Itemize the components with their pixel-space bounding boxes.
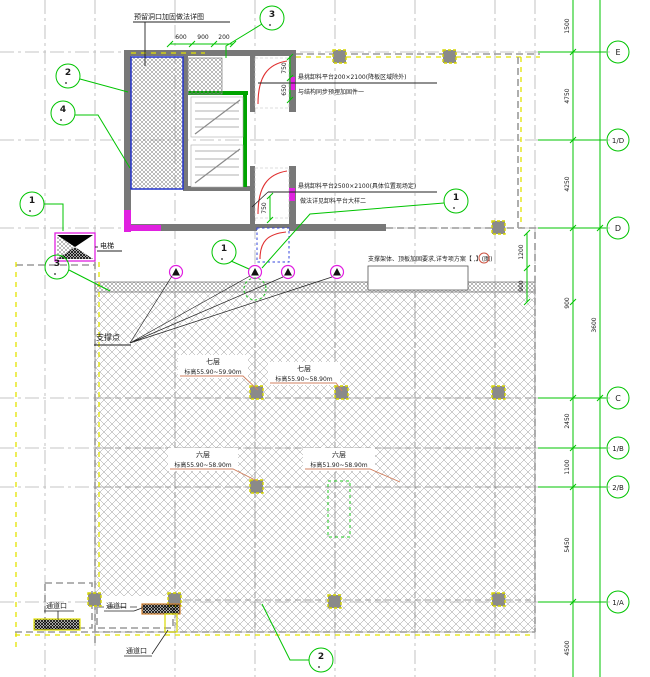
callout-bubble: 2 bbox=[56, 64, 128, 92]
svg-text:1200: 1200 bbox=[518, 244, 525, 259]
passage-bar bbox=[142, 604, 180, 614]
svg-text:900: 900 bbox=[564, 297, 571, 309]
passage-label: 通道口 bbox=[46, 601, 67, 610]
svg-text:2: 2 bbox=[65, 68, 71, 78]
callout-bubble: 1 bbox=[212, 240, 249, 269]
passage-label: 通道口 bbox=[106, 601, 127, 610]
svg-text:3600: 3600 bbox=[591, 317, 598, 332]
svg-text:4500: 4500 bbox=[564, 640, 571, 655]
grid-bubble: 2/B bbox=[607, 476, 629, 498]
platform-note-2-line2: 做法详见卸料平台大样二 bbox=[300, 197, 366, 205]
column bbox=[328, 595, 341, 608]
svg-text:2: 2 bbox=[318, 652, 324, 662]
svg-text:1/B: 1/B bbox=[612, 445, 624, 453]
zone-range: 标高51.90~58.90m bbox=[310, 461, 367, 469]
svg-text:1: 1 bbox=[453, 193, 459, 203]
cad-canvas: 支撑点 电梯 通道口 通道口 通道口 七层 标高55.90~59.90m bbox=[0, 0, 650, 677]
svg-text:C: C bbox=[615, 394, 621, 403]
platform-note-2-line1: 悬挑卸料平台2500×2100(具体位置现场定) bbox=[298, 182, 416, 190]
svg-text:600: 600 bbox=[175, 34, 187, 41]
svg-text:1: 1 bbox=[221, 244, 227, 254]
support-point-symbol bbox=[249, 266, 262, 279]
platform-note-1-line1: 悬挑卸料平台200×2100(降板区域除外) bbox=[298, 73, 406, 81]
svg-text:3: 3 bbox=[269, 10, 275, 20]
zone-range: 标高55.90~59.90m bbox=[184, 368, 241, 376]
upper-core-block bbox=[124, 50, 540, 262]
svg-text:1/D: 1/D bbox=[612, 137, 624, 145]
site-plan-drawing: 支撑点 电梯 通道口 通道口 通道口 七层 标高55.90~59.90m bbox=[0, 0, 650, 677]
column bbox=[492, 386, 505, 399]
slab-note: 支撑架体、顶板加固要求,详专项方案【 ,】(图) bbox=[368, 255, 492, 263]
column bbox=[333, 50, 346, 63]
column bbox=[88, 593, 101, 606]
svg-text:D: D bbox=[615, 224, 621, 233]
hoist-symbol: 电梯 bbox=[55, 233, 122, 261]
svg-text:1/A: 1/A bbox=[612, 599, 624, 607]
svg-text:4: 4 bbox=[60, 105, 66, 115]
svg-text:1: 1 bbox=[29, 196, 35, 206]
svg-text:E: E bbox=[615, 48, 620, 57]
column bbox=[492, 593, 505, 606]
svg-text:3: 3 bbox=[54, 259, 60, 269]
column bbox=[250, 386, 263, 399]
passage-bar bbox=[34, 619, 80, 630]
dim-texts: 1500 4750 4250 900 3600 2450 1100 5450 4… bbox=[564, 18, 598, 655]
zone-title: 七层 bbox=[206, 357, 220, 366]
grid-bubble: C bbox=[607, 387, 629, 409]
svg-text:4250: 4250 bbox=[564, 176, 571, 191]
svg-text:650: 650 bbox=[281, 84, 288, 96]
slab-hatch-area bbox=[15, 232, 535, 648]
column bbox=[443, 50, 456, 63]
zone-title: 六层 bbox=[196, 450, 210, 459]
svg-text:5450: 5450 bbox=[564, 537, 571, 552]
grid-bubble: D bbox=[607, 217, 629, 239]
right-dimension-chains: E 1/D D C 1/B 2/B bbox=[538, 0, 629, 677]
grid-bubble: 1/B bbox=[607, 437, 629, 459]
svg-text:4750: 4750 bbox=[564, 88, 571, 103]
grid-bubbles: E 1/D D C 1/B 2/B bbox=[607, 41, 629, 613]
passage-label: 通道口 bbox=[126, 646, 147, 655]
grid-bubble: 1/A bbox=[607, 591, 629, 613]
small-hatch-zone bbox=[188, 58, 222, 94]
column bbox=[250, 480, 263, 493]
svg-text:200: 200 bbox=[218, 34, 230, 41]
zone-title: 六层 bbox=[332, 450, 346, 459]
grid-bubble: 1/D bbox=[607, 129, 629, 151]
hoist-label: 电梯 bbox=[100, 241, 114, 250]
platform-note-1-line2: 与结构同步预埋加固件一 bbox=[298, 88, 364, 96]
top-note: 预留洞口加固做法详图 bbox=[134, 12, 204, 21]
column bbox=[335, 386, 348, 399]
svg-text:2450: 2450 bbox=[564, 413, 571, 428]
svg-text:750: 750 bbox=[261, 202, 268, 214]
zone-range: 标高55.90~58.90m bbox=[174, 461, 231, 469]
svg-text:1100: 1100 bbox=[564, 459, 571, 474]
callout-bubble: 4 bbox=[51, 101, 130, 168]
svg-text:900: 900 bbox=[518, 280, 525, 292]
reinforced-zone-hatch bbox=[131, 57, 183, 189]
support-label: 支撑点 bbox=[96, 332, 120, 342]
callout-bubble: 1 bbox=[20, 192, 63, 231]
svg-text:1500: 1500 bbox=[564, 18, 571, 33]
stair-flights bbox=[191, 97, 243, 187]
zone-title: 七层 bbox=[297, 364, 311, 373]
support-point-symbol bbox=[331, 266, 344, 279]
grid-bubble: E bbox=[607, 41, 629, 63]
zone-range: 标高55.90~58.90m bbox=[275, 375, 332, 383]
note-box bbox=[368, 266, 468, 290]
column bbox=[492, 221, 505, 234]
svg-text:2/B: 2/B bbox=[612, 484, 624, 492]
svg-text:750: 750 bbox=[281, 62, 288, 74]
support-point-symbol bbox=[282, 266, 295, 279]
svg-text:900: 900 bbox=[197, 34, 209, 41]
